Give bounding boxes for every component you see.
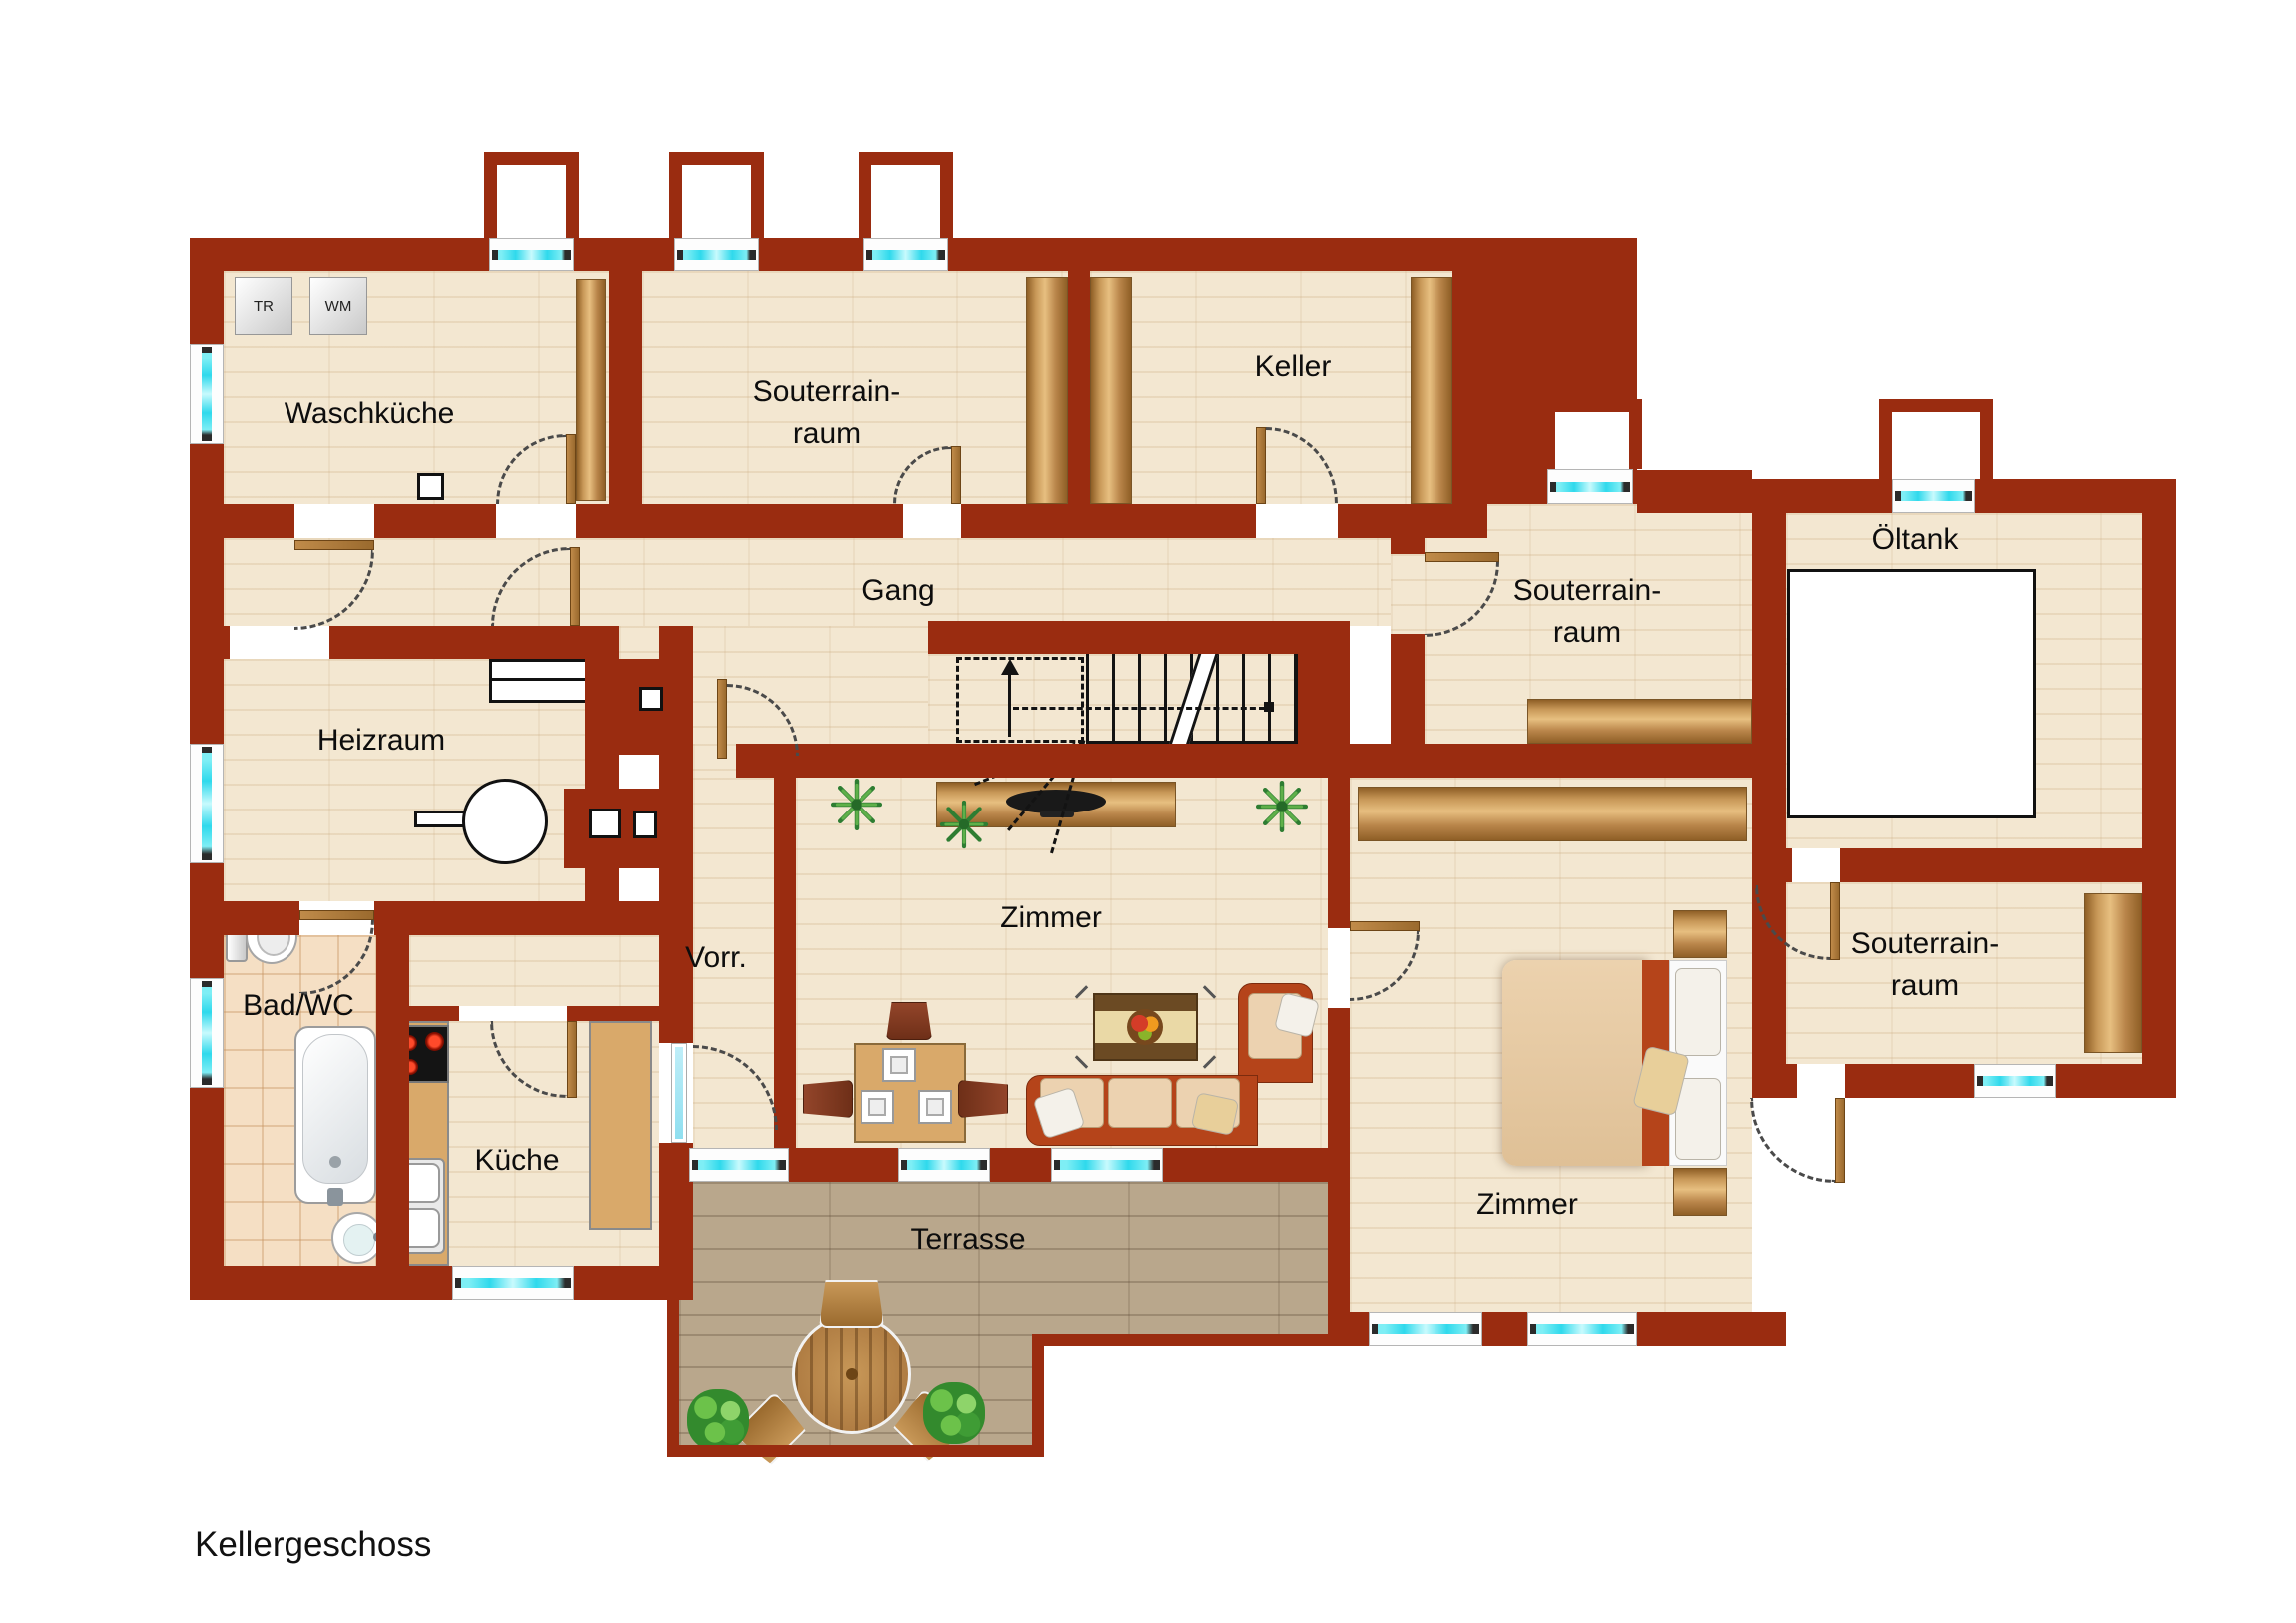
light-well — [859, 152, 953, 238]
door-leaf — [1350, 921, 1420, 931]
window — [1547, 469, 1633, 504]
terrace-chair-north — [819, 1280, 884, 1328]
room-label-bad-wc: Bad/WC — [243, 989, 354, 1023]
window — [689, 1148, 789, 1182]
wall — [736, 744, 1786, 778]
chimney-block — [564, 789, 679, 868]
light-well — [669, 152, 764, 238]
oil-tank — [1787, 569, 2036, 818]
door-leaf — [567, 1021, 577, 1098]
window — [190, 978, 224, 1088]
window — [1892, 479, 1975, 513]
dining-chair-east — [958, 1080, 1008, 1118]
wall — [376, 935, 409, 1266]
door-leaf — [570, 547, 580, 626]
window — [1051, 1148, 1163, 1182]
wall — [190, 901, 299, 935]
floor-tuerdurchgang-sout-mitte — [1391, 554, 1425, 634]
door-leaf — [717, 679, 727, 759]
stairs-walkline-end — [1264, 702, 1274, 712]
door-leaf — [1835, 1098, 1845, 1183]
shelf-keller-rechts — [1411, 277, 1452, 504]
stairs-walkline — [1013, 707, 1265, 710]
wall — [374, 901, 693, 935]
wall — [609, 271, 642, 504]
wall — [2142, 479, 2176, 1098]
wall — [409, 1006, 459, 1021]
radiator-heizraum — [489, 659, 593, 703]
plant-icon — [938, 799, 990, 850]
room-label-line: raum — [753, 413, 900, 455]
shelf-souterrain-oben — [1026, 277, 1068, 504]
terrace-border — [667, 1182, 679, 1457]
dining-chair-north — [886, 1002, 932, 1040]
room-label-line: Souterrain- — [753, 371, 900, 413]
wall — [190, 626, 230, 659]
room-label-zimmer-mitte: Zimmer — [1000, 901, 1102, 935]
room-label-souterrain-unten: Souterrain- raum — [1851, 923, 1999, 1007]
room-label-heizraum: Heizraum — [317, 724, 445, 758]
room-label-zimmer-rechts: Zimmer — [1476, 1188, 1578, 1222]
terrace-table-hole — [846, 1368, 858, 1380]
wall — [576, 504, 903, 538]
terrace-border — [1044, 1334, 1340, 1346]
room-label-line: Souterrain- — [1513, 570, 1661, 612]
wall — [329, 626, 619, 659]
wall — [1298, 621, 1350, 744]
window — [190, 344, 224, 444]
wall — [1328, 744, 1350, 928]
boiler-tank — [462, 779, 548, 864]
nightstand — [1673, 910, 1727, 958]
window — [863, 238, 948, 271]
bed-pillow — [1675, 1078, 1721, 1160]
room-label-souterrain-oben: Souterrain- raum — [753, 371, 900, 455]
door-leaf — [951, 446, 961, 504]
light-well — [1542, 399, 1642, 469]
wall — [659, 1006, 693, 1043]
dining-chair-west — [803, 1080, 853, 1118]
washbasin-inner — [343, 1224, 375, 1256]
flue-box — [639, 687, 663, 711]
wall — [190, 504, 294, 538]
terrace-plant-icon — [923, 1382, 985, 1444]
sofa-cushion — [1108, 1078, 1172, 1128]
washing-machine-unit: WM — [309, 277, 367, 335]
wall-stairwell — [928, 621, 1298, 654]
radiator-divider — [489, 678, 593, 681]
shelf-keller-links — [1090, 277, 1132, 504]
room-label-line: Souterrain- — [1851, 923, 1999, 965]
window — [1369, 1312, 1482, 1346]
window — [1974, 1064, 2056, 1098]
wall — [1068, 271, 1090, 504]
door-leaf — [1425, 552, 1499, 562]
wardrobe-souterrain-unten — [2084, 893, 2142, 1053]
window — [190, 744, 224, 863]
door-leaf — [294, 540, 374, 550]
room-label-terrasse: Terrasse — [910, 1223, 1025, 1257]
boiler-handle — [414, 811, 469, 827]
door-swing-arc — [1750, 1098, 1835, 1183]
kitchen-tall-cabinet — [589, 1021, 652, 1230]
floor-vorraum-strip — [409, 935, 693, 1006]
door-leaf — [299, 910, 374, 920]
window — [489, 238, 574, 271]
wall — [1752, 1064, 1797, 1098]
terrace-border — [667, 1445, 1044, 1457]
washer-label: WM — [325, 298, 352, 315]
stairs-dashed-section — [956, 657, 1084, 743]
room-label-line: raum — [1513, 612, 1661, 654]
wall — [1391, 504, 1425, 554]
stairs-up-arrow-head — [1001, 659, 1019, 675]
wall — [1425, 504, 1487, 538]
bathtub-faucet — [327, 1188, 343, 1206]
wall — [1752, 513, 1786, 1098]
floor-terrasse-nord — [679, 1182, 1328, 1334]
plate — [918, 1090, 952, 1124]
floor-gang — [224, 538, 1391, 626]
wall — [190, 1266, 693, 1300]
window — [452, 1266, 574, 1300]
wall — [374, 504, 496, 538]
plan-title: Kellergeschoss — [195, 1525, 431, 1565]
plate — [861, 1090, 894, 1124]
plate — [882, 1048, 916, 1082]
bed-pillow — [1675, 968, 1721, 1056]
wall — [1840, 848, 2142, 882]
room-label-keller: Keller — [1255, 350, 1332, 384]
stairs-up-arrow-stem — [1008, 671, 1011, 737]
plant-icon — [829, 777, 884, 832]
wall — [1752, 848, 1792, 882]
flue-box — [589, 809, 621, 838]
light-well — [1879, 399, 1993, 479]
window — [674, 238, 759, 271]
window — [898, 1148, 990, 1182]
bed-blanket — [1502, 960, 1647, 1166]
room-label-kueche: Küche — [474, 1144, 559, 1178]
room-label-souterrain-mitte: Souterrain- raum — [1513, 570, 1661, 654]
floorplan-kellergeschoss: TR WM — [0, 0, 2296, 1623]
wall — [961, 504, 1256, 538]
door-leaf — [566, 434, 576, 504]
flue-box-gang — [417, 473, 444, 500]
fruit-bowl — [1127, 1009, 1163, 1045]
room-label-gang: Gang — [861, 574, 934, 608]
wall — [1637, 470, 1752, 513]
room-label-waschkueche: Waschküche — [285, 397, 455, 431]
sideboard-souterrain-mitte — [1527, 699, 1752, 744]
room-label-vorraum: Vorr. — [685, 941, 747, 975]
window — [1527, 1312, 1637, 1346]
bathtub-drain — [329, 1156, 341, 1168]
light-well — [484, 152, 579, 238]
room-label-oeltank: Öltank — [1872, 523, 1959, 557]
nightstand — [1673, 1168, 1727, 1216]
cabinet-waschkueche — [576, 279, 606, 501]
room-label-line: raum — [1851, 965, 1999, 1007]
stove-burner — [425, 1032, 444, 1051]
door-leaf — [1256, 427, 1266, 504]
dryer-unit: TR — [235, 277, 292, 335]
flue-box — [633, 811, 657, 838]
tv-stand — [1040, 811, 1074, 817]
terrace-plant-icon — [687, 1389, 749, 1451]
glass-door-pane — [675, 1047, 683, 1139]
wardrobe-zimmer-rechts — [1358, 787, 1747, 841]
plant-icon — [1254, 779, 1310, 834]
wall — [774, 756, 796, 1182]
terrace-border — [1032, 1334, 1044, 1457]
dryer-label: TR — [254, 298, 274, 315]
door-leaf — [1830, 882, 1840, 960]
